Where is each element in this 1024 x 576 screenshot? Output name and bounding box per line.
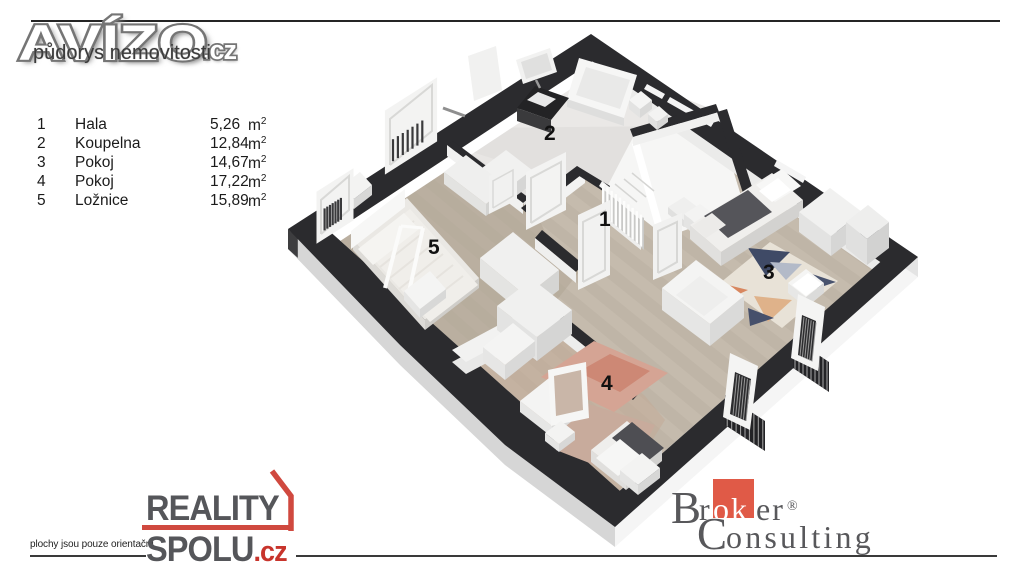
svg-text:2: 2 [544,122,556,145]
svg-text:C: C [697,509,727,559]
svg-text:3: 3 [763,261,775,284]
svg-text:onsulting: onsulting [726,519,874,555]
svg-text:1: 1 [599,208,611,231]
svg-text:4: 4 [601,372,613,395]
svg-text:5: 5 [428,236,440,259]
svg-text:®: ® [787,499,798,514]
